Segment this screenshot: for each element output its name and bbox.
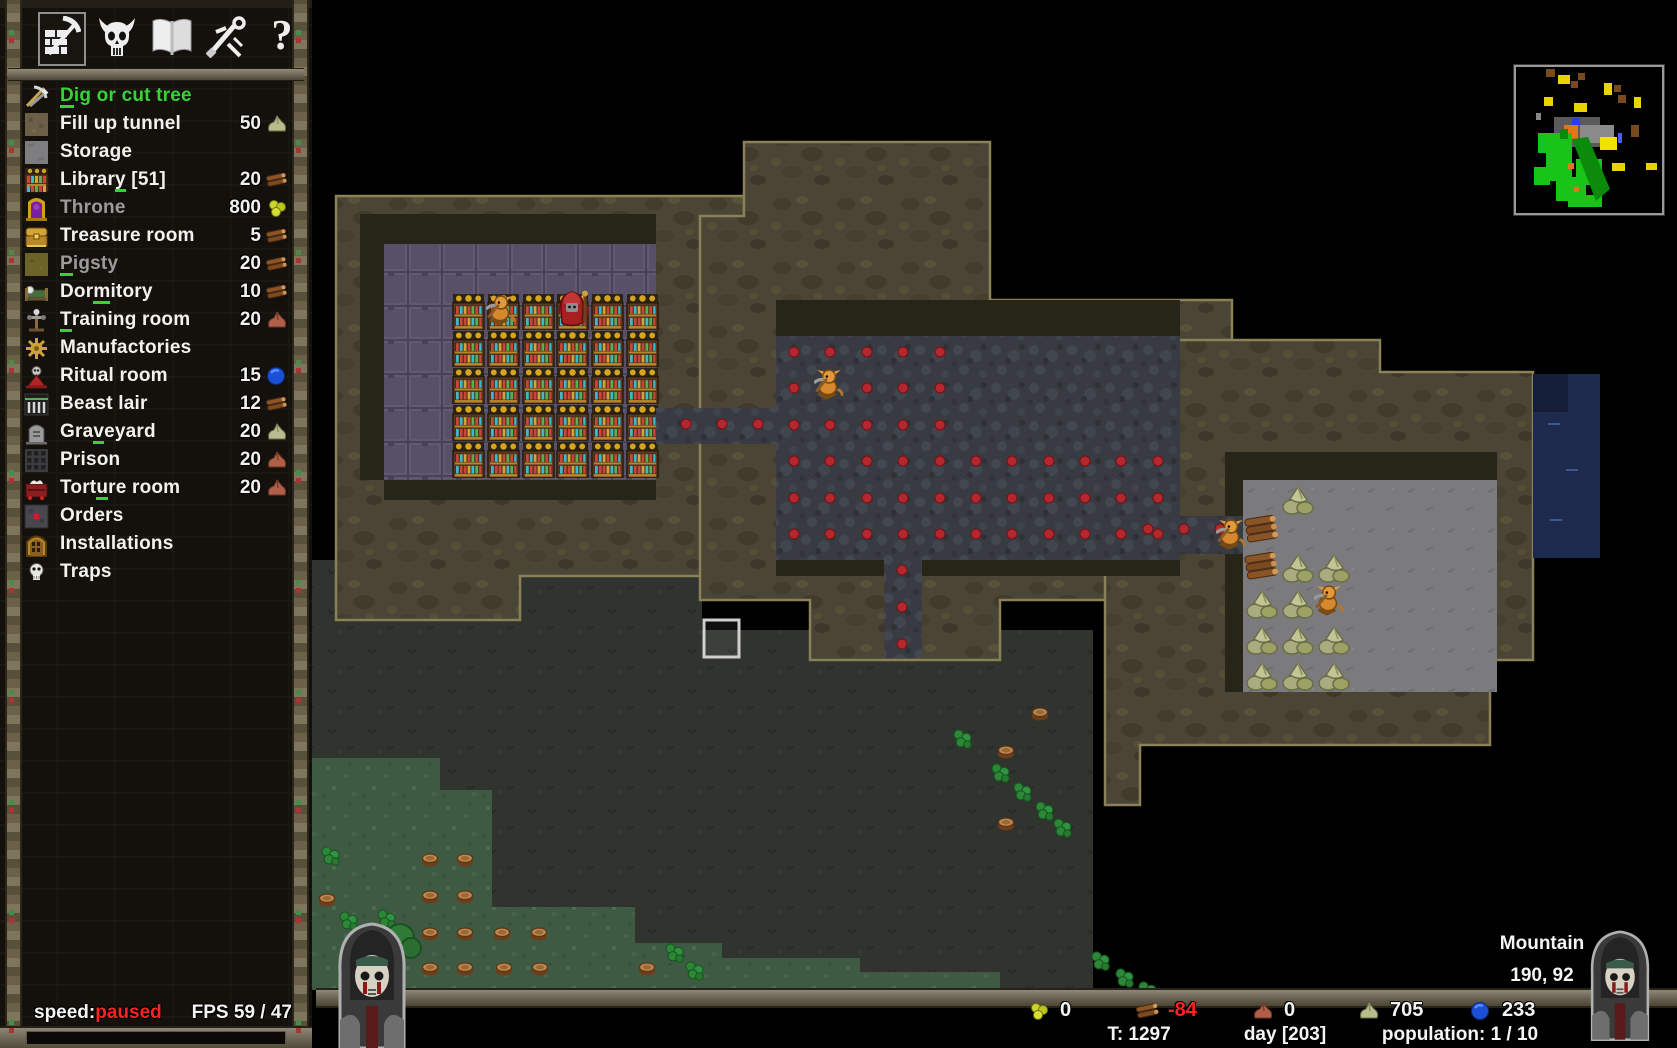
- mana-resource-icon: [266, 366, 288, 386]
- resource-value: 0: [1284, 999, 1295, 1022]
- frame-gem: [9, 698, 14, 703]
- bookshelf: [627, 331, 658, 367]
- creature-keeper: [561, 291, 588, 326]
- minimap-canvas: [1516, 67, 1662, 213]
- build-menu-item[interactable]: Library [51] 20: [24, 166, 288, 194]
- throne-icon: [24, 196, 49, 221]
- dormitory-icon: [24, 280, 49, 305]
- frame-gem: [9, 470, 14, 475]
- installations-icon: [24, 532, 49, 557]
- mana-resource-icon: [1470, 1000, 1494, 1022]
- resource-gold[interactable]: 0: [1028, 999, 1071, 1022]
- bookshelf: [592, 294, 623, 330]
- build-menu-item[interactable]: Orders: [24, 502, 288, 530]
- resource-bar: 0-840705233: [312, 999, 1677, 1023]
- tree-stump: [422, 854, 438, 867]
- frame-top: [0, 0, 312, 8]
- frame-gem: [9, 140, 14, 145]
- turn-counter: T: 1297: [1059, 1024, 1219, 1046]
- build-menu-item[interactable]: Treasure room 5: [24, 222, 288, 250]
- toolbar-tab-build[interactable]: [38, 12, 86, 66]
- build-menu-item[interactable]: Installations: [24, 530, 288, 558]
- sword-icon: [206, 16, 248, 63]
- speed-status: speed:paused FPS 59 / 47: [34, 1002, 292, 1024]
- library-room: [384, 244, 658, 480]
- frame-gem: [296, 258, 301, 263]
- frame-gem: [9, 808, 14, 813]
- graveyard-icon: [24, 420, 49, 445]
- frame-gem: [9, 1020, 14, 1025]
- speed-value[interactable]: paused: [95, 1002, 162, 1023]
- resource-value: 0: [1060, 999, 1071, 1022]
- bookshelf: [488, 405, 519, 441]
- bookshelf: [488, 442, 519, 478]
- gold-resource-icon: [266, 198, 288, 218]
- cost-value: 10: [240, 281, 261, 303]
- book-icon: [151, 17, 193, 62]
- resource-value: -84: [1168, 999, 1197, 1022]
- frame-gem: [296, 140, 301, 145]
- bookshelf: [453, 331, 484, 367]
- iron-resource-icon: [266, 478, 288, 498]
- wood-pile: [1244, 515, 1278, 543]
- cost-value: 800: [229, 197, 261, 219]
- toolbar-tab-technology[interactable]: [148, 12, 196, 66]
- grass-tuft: [1092, 952, 1109, 970]
- build-menu-item[interactable]: Training room 20: [24, 306, 288, 334]
- cost-value: 20: [240, 449, 261, 471]
- cost-value: 15: [240, 365, 261, 387]
- tree-stump: [494, 928, 510, 941]
- cost-value: 50: [240, 113, 261, 135]
- build-menu-item[interactable]: Storage: [24, 138, 288, 166]
- wood-pile: [1244, 552, 1278, 580]
- toolbar-tab-minions[interactable]: [93, 12, 141, 66]
- tree-stump: [998, 746, 1014, 759]
- frame-gem: [296, 478, 301, 483]
- water: [1533, 374, 1600, 558]
- build-menu-item[interactable]: Throne 800: [24, 194, 288, 222]
- tree-stump: [1032, 708, 1048, 721]
- frame-gem: [9, 910, 14, 915]
- frame-gem: [296, 580, 301, 585]
- traps-icon: [24, 560, 49, 585]
- wood-resource-icon: [266, 170, 288, 190]
- resource-stone[interactable]: 705: [1358, 999, 1423, 1022]
- tree-stump: [457, 928, 473, 941]
- tree-stump: [319, 894, 335, 907]
- bookshelf: [453, 442, 484, 478]
- frame-gem: [296, 38, 301, 43]
- tree-stump: [457, 854, 473, 867]
- frame-gem: [296, 368, 301, 373]
- frame-gem: [9, 478, 14, 483]
- bookshelf: [592, 331, 623, 367]
- toolbar-divider: [8, 68, 304, 81]
- build-menu-item[interactable]: Torture room 20: [24, 474, 288, 502]
- bookshelf: [557, 331, 588, 367]
- map-viewport[interactable]: Mountain 190, 92 0-840705233 T: 1297 day…: [312, 0, 1677, 1048]
- game-stats-bar: T: 1297 day [203] population: 1 / 10: [312, 1024, 1677, 1048]
- resource-value: 233: [1502, 999, 1535, 1022]
- resource-mana[interactable]: 233: [1470, 999, 1535, 1022]
- reaper-statue-left: [326, 920, 418, 1048]
- manufactory-icon: [24, 336, 49, 361]
- resource-wood[interactable]: -84: [1136, 999, 1197, 1022]
- wood-resource-icon: [266, 226, 288, 246]
- frame-gem: [9, 38, 14, 43]
- frame-gem: [9, 148, 14, 153]
- frame-gem: [296, 1020, 301, 1025]
- build-menu: Dig or cut tree Fill up tunnel 50 Storag…: [24, 82, 288, 586]
- build-menu-item[interactable]: Prison 20: [24, 446, 288, 474]
- stone-resource-icon: [266, 114, 288, 134]
- bookshelf: [453, 294, 484, 330]
- tree-stump: [998, 818, 1014, 831]
- prison-icon: [24, 448, 49, 473]
- grass-tuft: [1116, 969, 1133, 987]
- frame-gem: [9, 1028, 14, 1033]
- sidebar: ? Dig or cut tree Fill up tunnel 50 Stor…: [0, 0, 312, 1048]
- training-icon: [24, 308, 49, 333]
- bookshelf: [592, 405, 623, 441]
- tree-stump: [532, 963, 548, 976]
- gold-resource-icon: [1028, 1000, 1052, 1022]
- bookshelf: [627, 368, 658, 404]
- bookshelf: [453, 405, 484, 441]
- tile-cursor: [704, 620, 739, 657]
- cost-value: 20: [240, 309, 261, 331]
- frame-gem: [296, 698, 301, 703]
- cost-value: 5: [250, 225, 261, 247]
- speed-label: speed:: [34, 1002, 95, 1023]
- horned-skull-icon: [97, 16, 137, 63]
- iron-resource-icon: [266, 310, 288, 330]
- frame-gem: [9, 368, 14, 373]
- build-menu-item[interactable]: Beast lair 12: [24, 390, 288, 418]
- build-menu-item[interactable]: Graveyard 20: [24, 418, 288, 446]
- pickaxe-wall-icon: [43, 16, 81, 63]
- cost-value: 20: [240, 253, 261, 275]
- frame-gem: [296, 250, 301, 255]
- wood-resource-icon: [266, 254, 288, 274]
- frame-gem: [296, 918, 301, 923]
- bookshelf: [627, 442, 658, 478]
- wood-resource-icon: [1136, 1000, 1160, 1022]
- bookshelf: [627, 405, 658, 441]
- tree-stump: [496, 963, 512, 976]
- treasure-icon: [24, 224, 49, 249]
- stone-resource-icon: [266, 422, 288, 442]
- pigsty-icon: [24, 252, 49, 277]
- bookshelf: [627, 294, 658, 330]
- wood-resource-icon: [266, 394, 288, 414]
- tree-stump: [422, 891, 438, 904]
- frame-gem: [9, 250, 14, 255]
- cost-value: 12: [240, 393, 261, 415]
- cost-value: 20: [240, 169, 261, 191]
- keeperrl-game-window: Mountain 190, 92 0-840705233 T: 1297 day…: [0, 0, 1677, 1048]
- frame-gem: [9, 30, 14, 35]
- beast-lair-icon: [24, 392, 49, 417]
- bookshelf: [453, 368, 484, 404]
- frame-gem: [296, 800, 301, 805]
- iron-resource-icon: [266, 450, 288, 470]
- toolbar: ?: [38, 12, 306, 66]
- bookshelf: [523, 405, 554, 441]
- frame-gem: [9, 690, 14, 695]
- bookshelf: [592, 368, 623, 404]
- build-menu-item[interactable]: Dormitory 10: [24, 278, 288, 306]
- frame-gem: [296, 588, 301, 593]
- storage-icon: [24, 140, 49, 165]
- frame-bottom-inset: [26, 1031, 286, 1045]
- library-icon: [24, 168, 49, 193]
- bookshelf: [557, 405, 588, 441]
- frame-gem: [296, 1028, 301, 1033]
- frame-gem: [296, 148, 301, 153]
- bookshelf: [557, 442, 588, 478]
- frame-gem: [296, 910, 301, 915]
- iron-resource-icon: [1252, 1000, 1276, 1022]
- bookshelf: [523, 294, 554, 330]
- frame-pillar-right: [292, 0, 309, 1048]
- frame-gem: [296, 690, 301, 695]
- tree-stump: [457, 891, 473, 904]
- svg-text:?: ?: [272, 15, 293, 59]
- frame-gem: [296, 30, 301, 35]
- minimap[interactable]: [1514, 65, 1664, 215]
- reaper-statue-right: [1580, 920, 1660, 1048]
- bookshelf: [488, 331, 519, 367]
- toolbar-tab-combat[interactable]: [203, 12, 251, 66]
- frame-gem: [9, 918, 14, 923]
- ritual-icon: [24, 364, 49, 389]
- build-menu-item[interactable]: Traps: [24, 558, 288, 586]
- tree-stump: [457, 963, 473, 976]
- dig-icon: [24, 84, 49, 109]
- storage-room: [1216, 480, 1497, 692]
- cost-value: 20: [240, 477, 261, 499]
- frame-gem: [9, 360, 14, 365]
- bookshelf: [523, 442, 554, 478]
- cost-value: 20: [240, 421, 261, 443]
- frame-gem: [9, 800, 14, 805]
- question-icon: ?: [267, 15, 297, 64]
- fps-counter: FPS 59 / 47: [192, 1002, 292, 1024]
- frame-gem: [9, 258, 14, 263]
- build-menu-item[interactable]: Ritual room 15: [24, 362, 288, 390]
- build-menu-item[interactable]: Dig or cut tree: [24, 82, 288, 110]
- build-menu-item[interactable]: Pigsty 20: [24, 250, 288, 278]
- bookshelf: [592, 442, 623, 478]
- resource-iron[interactable]: 0: [1252, 999, 1295, 1022]
- frame-pillar-left: [5, 0, 22, 1048]
- frame-gem: [296, 808, 301, 813]
- frame-gem: [9, 580, 14, 585]
- bookshelf: [488, 368, 519, 404]
- build-menu-item[interactable]: Manufactories: [24, 334, 288, 362]
- tree-stump: [422, 963, 438, 976]
- torture-icon: [24, 476, 49, 501]
- population-counter: population: 1 / 10: [1342, 1024, 1578, 1046]
- orders-icon: [24, 504, 49, 529]
- frame-gem: [296, 360, 301, 365]
- tree-stump: [422, 928, 438, 941]
- bookshelf: [523, 368, 554, 404]
- frame-gem: [296, 470, 301, 475]
- bookshelf: [557, 368, 588, 404]
- stone-resource-icon: [1358, 1000, 1382, 1022]
- tunnel-icon: [24, 112, 49, 137]
- frame-gem: [9, 588, 14, 593]
- tree-stump: [639, 963, 655, 976]
- wood-resource-icon: [266, 282, 288, 302]
- tree-stump: [531, 928, 547, 941]
- bookshelf: [523, 331, 554, 367]
- resource-value: 705: [1390, 999, 1423, 1022]
- build-menu-item[interactable]: Fill up tunnel 50: [24, 110, 288, 138]
